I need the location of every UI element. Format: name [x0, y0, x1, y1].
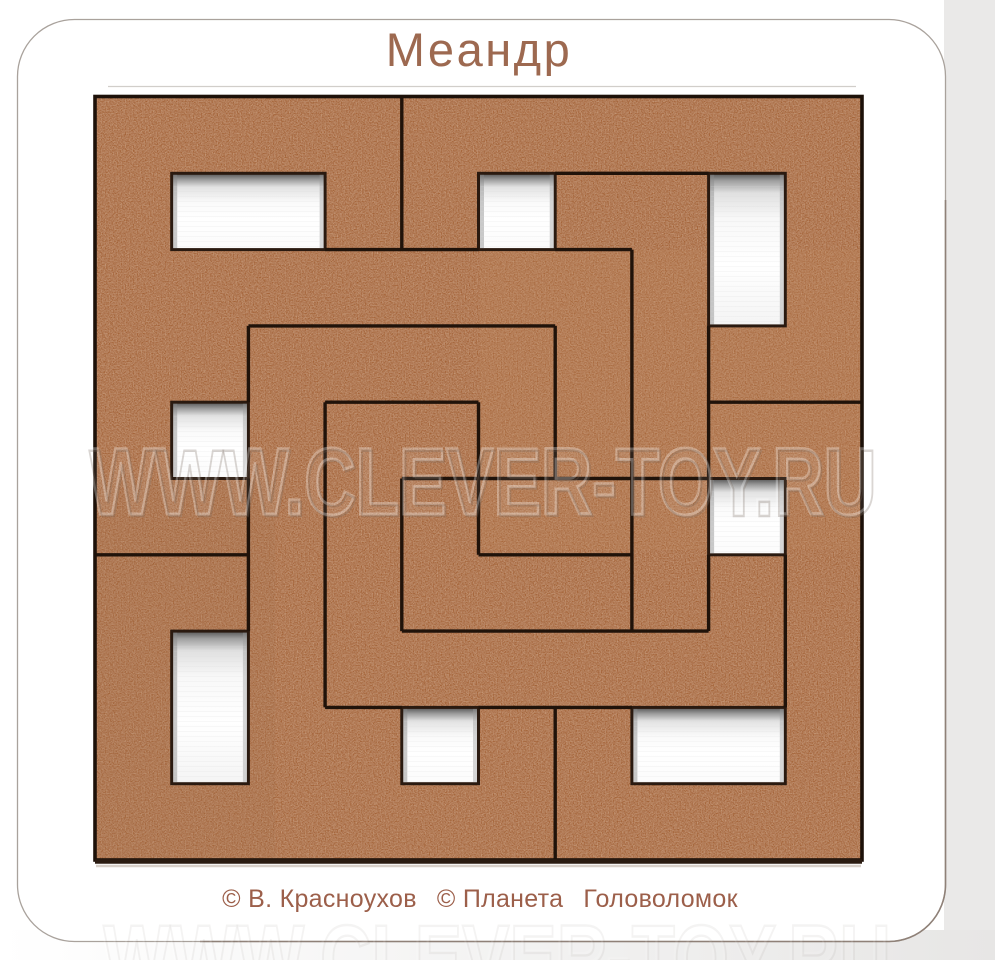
svg-text:© В. Красноухов © Планета Го: © В. Красноухов © Планета Головоломок [222, 885, 738, 913]
svg-text:WWW.CLEVER-TOY.RU: WWW.CLEVER-TOY.RU [89, 430, 876, 536]
svg-text:WWW.CLEVER-TOY.RU: WWW.CLEVER-TOY.RU [103, 905, 890, 960]
svg-text:Меандр: Меандр [386, 23, 572, 76]
